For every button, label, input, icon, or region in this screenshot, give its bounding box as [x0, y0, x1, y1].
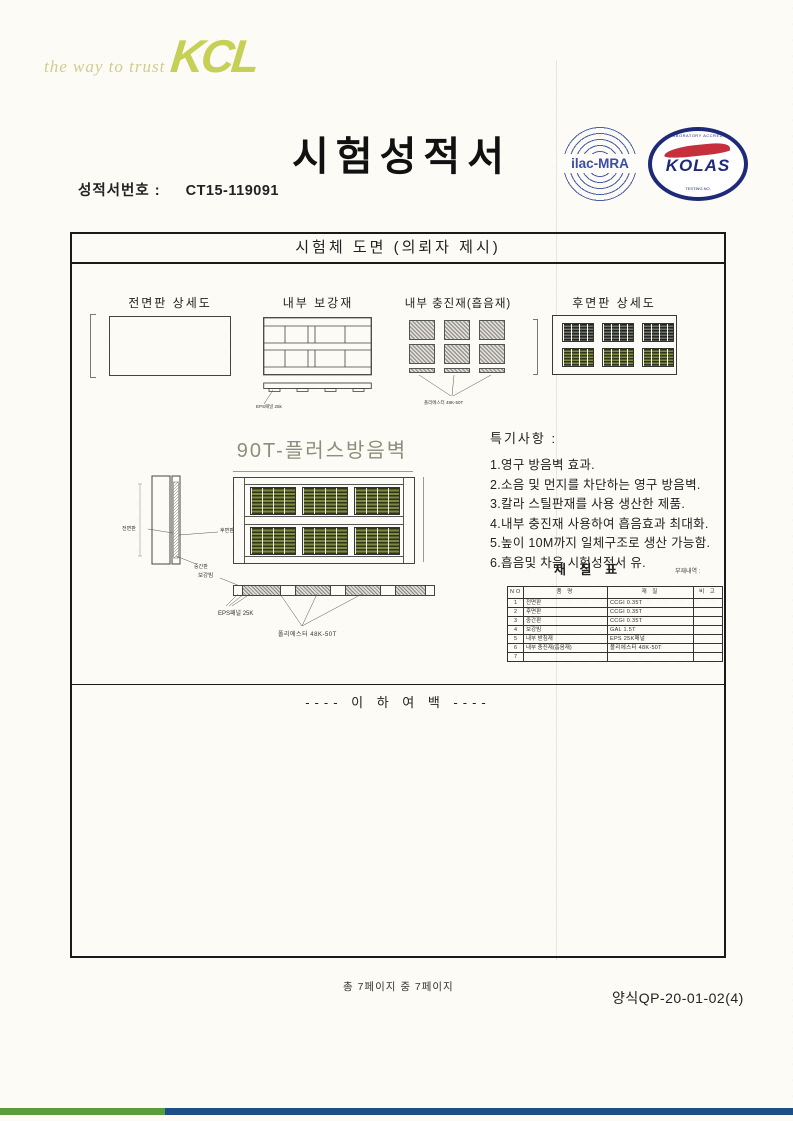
report-page: the way to trust KCL 시험성적서 성적서번호 : CT15-… — [0, 0, 793, 1121]
filler-leader-lines — [409, 374, 509, 400]
filler-block — [444, 320, 470, 340]
louvre-group — [302, 527, 348, 555]
polyester-label: 폴리에스터 48K-50T — [278, 629, 337, 638]
louvre-panel — [602, 348, 634, 367]
frame-band — [244, 556, 404, 557]
front-panel-dimension-bracket — [90, 314, 96, 378]
louvre-panel — [642, 348, 674, 367]
filler-label: 내부 충진재(흡음재) — [390, 295, 526, 311]
louvre-panel — [642, 323, 674, 342]
kcl-logo: the way to trust KCL — [44, 36, 257, 77]
beam-label: 보강빔 — [198, 571, 213, 579]
side-front-label: 전면판 — [122, 525, 136, 532]
col-header: NO — [508, 587, 524, 599]
cross-section-leader-lines — [202, 572, 502, 636]
louvre-group — [250, 487, 296, 515]
side-middle-label: 중간판 — [194, 563, 208, 570]
table-row: 3 중간판 CCGI 0.35T — [508, 617, 723, 626]
bottom-bar-green-segment — [0, 1108, 165, 1115]
eps-panel-note: EPS패널 25k — [256, 404, 282, 410]
front-view-drawing — [233, 477, 415, 564]
rear-panel-label: 후면판 상세도 — [550, 294, 678, 311]
rear-panel-drawing — [552, 315, 677, 375]
bottom-bar-blue-segment — [165, 1108, 793, 1115]
col-header: 품 명 — [524, 587, 608, 599]
reinforcement-label: 내부 보강재 — [260, 294, 376, 311]
frame-band — [244, 484, 404, 485]
filler-strip — [409, 368, 435, 373]
louvre-panel — [562, 323, 594, 342]
filler-strip — [479, 368, 505, 373]
front-panel-drawing — [109, 316, 231, 376]
col-header: 재 질 — [608, 587, 694, 599]
louvre-group — [354, 487, 400, 515]
front-panel-label: 전면판 상세도 — [100, 294, 240, 311]
filler-drawing — [409, 320, 505, 373]
form-number-text: 양식QP-20-01-02(4) — [612, 988, 744, 1008]
louvre-panel — [562, 348, 594, 367]
report-number-label: 성적서번호 : — [78, 183, 161, 199]
height-dimension-line — [419, 477, 424, 562]
report-number-value: CT15-119091 — [186, 183, 279, 199]
table-row: 2 후면판 CCGI 0.35T — [508, 608, 723, 617]
drawing-box-header: 시험체 도면 (의뢰자 제시) — [72, 234, 724, 264]
note-item: 5.높이 10M까지 일체구조로 생산 가능함. — [490, 534, 718, 554]
page-count-text: 총 7페이지 중 7페이지 — [343, 979, 454, 994]
louvre-panel — [602, 323, 634, 342]
frame-band — [244, 516, 404, 525]
note-item: 2.소음 및 먼지를 차단하는 영구 방음벽. — [490, 476, 718, 496]
filler-block — [479, 320, 505, 340]
material-table-header-row: NO 품 명 재 질 비 고 — [508, 587, 723, 599]
report-number-row: 성적서번호 : CT15-119091 — [78, 179, 279, 200]
reinforcement-drawing — [263, 317, 372, 409]
table-row: 6 내부 충진재(흡음재) 폴리에스터 48K-50T — [508, 644, 723, 653]
louvre-group — [250, 527, 296, 555]
ilac-label: ilac-MRA — [560, 156, 640, 171]
kolas-label: KOLAS — [652, 156, 744, 176]
filler-dimension-bracket — [533, 319, 538, 375]
product-title: 90T-플러스방음벽 — [202, 434, 442, 463]
table-row: 5 내부 받침재 EPS 25K패널 — [508, 635, 723, 644]
ilac-mra-seal-icon: ilac-MRA — [560, 124, 640, 204]
end-cap — [403, 478, 414, 563]
material-table: NO 품 명 재 질 비 고 1 전면판 CCGI 0.35T 2 후면판 CC… — [507, 586, 723, 662]
brand-tagline: the way to trust — [44, 57, 165, 77]
note-item: 4.내부 충진재 사용하여 흡음효과 최대화. — [490, 515, 718, 535]
polyester-note: 폴리에스터 48K-50T — [424, 400, 463, 406]
special-notes-title: 특기사항 : — [490, 428, 718, 447]
col-header: 비 고 — [694, 587, 723, 599]
width-dimension-line — [233, 471, 413, 475]
blank-below-note: ---- 이 하 여 백 ---- — [72, 692, 724, 711]
louvre-group — [354, 527, 400, 555]
louvre-group — [302, 487, 348, 515]
specimen-drawing-box: 시험체 도면 (의뢰자 제시) 전면판 상세도 내부 보강재 내부 충진재(흡음… — [70, 232, 726, 958]
filler-block — [444, 344, 470, 364]
kcl-logo-text: KCL — [169, 36, 259, 77]
certification-seals: ilac-MRA KOREA LABORATORY ACCREDITATION … — [560, 124, 748, 204]
kolas-ring-text: KOREA LABORATORY ACCREDITATION SCHEME — [652, 133, 744, 138]
material-table-note: 부재내역 : — [675, 566, 700, 575]
special-notes: 특기사항 : 1.영구 방음벽 효과. 2.소음 및 먼지를 차단하는 영구 방… — [490, 428, 718, 573]
kolas-sub-text: TESTING NO. — [652, 186, 744, 191]
blank-divider-line — [72, 684, 724, 685]
filler-block — [409, 344, 435, 364]
filler-block — [409, 320, 435, 340]
side-rear-label: 후면판 — [220, 527, 234, 534]
note-item: 3.칼라 스틸판재를 사용 생산한 제품. — [490, 495, 718, 515]
kolas-seal-icon: KOREA LABORATORY ACCREDITATION SCHEME KO… — [648, 127, 748, 201]
filler-block — [479, 344, 505, 364]
table-row: 1 전면판 CCGI 0.35T — [508, 599, 723, 608]
eps-label: EPS패널 25K — [218, 608, 253, 617]
table-row: 7 — [508, 653, 723, 662]
table-row: 4 보강빔 GAL 1.5T — [508, 626, 723, 635]
page-title: 시험성적서 — [292, 124, 511, 182]
material-table-title: 재 질 표 — [509, 559, 667, 578]
note-item: 1.영구 방음벽 효과. — [490, 456, 718, 476]
bottom-color-bar — [0, 1108, 793, 1115]
filler-strip — [444, 368, 470, 373]
